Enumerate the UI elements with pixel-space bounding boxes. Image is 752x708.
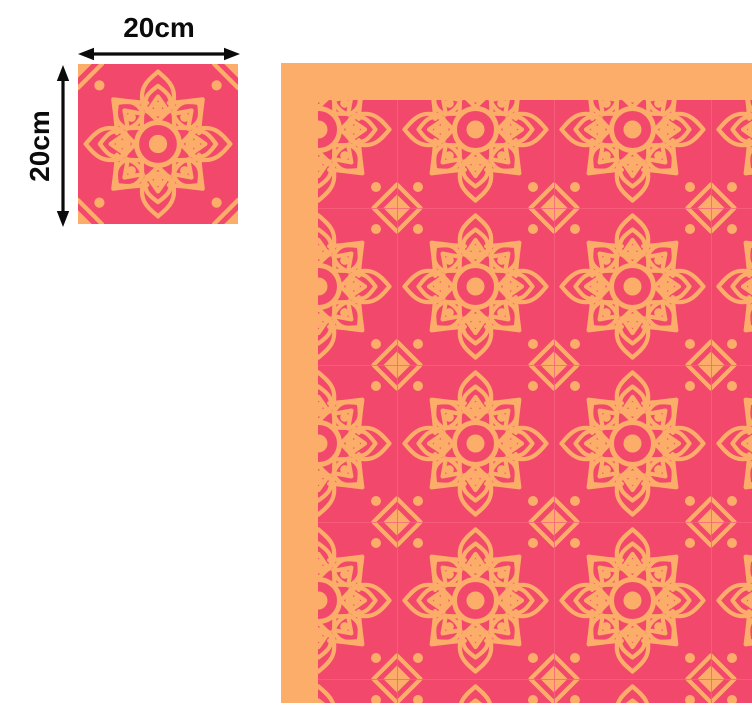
height-dimension-arrow-icon	[57, 65, 69, 227]
width-dimension-arrow-icon	[78, 48, 240, 60]
single-tile-swatch	[78, 64, 238, 224]
tile-pattern	[318, 100, 752, 703]
mandala-flower-tile	[78, 64, 238, 224]
pattern-preview-panel	[281, 63, 752, 703]
tiled-surface	[318, 100, 752, 703]
page-background: { "dimension_labels": { "width": "20cm",…	[0, 0, 752, 703]
